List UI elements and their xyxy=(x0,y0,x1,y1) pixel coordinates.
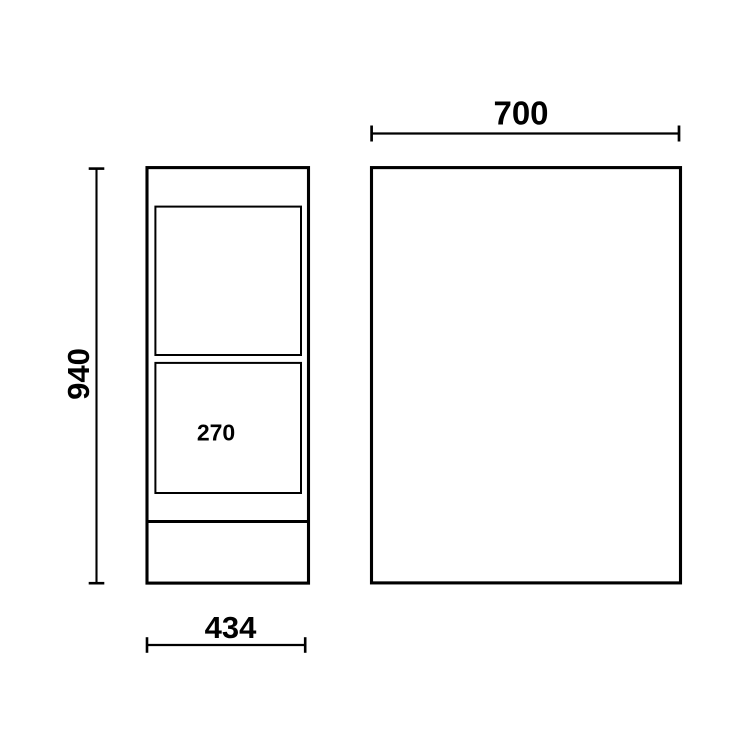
svg-text:434: 434 xyxy=(205,610,257,645)
svg-text:270: 270 xyxy=(197,419,235,445)
svg-text:700: 700 xyxy=(493,95,548,132)
svg-text:940: 940 xyxy=(61,348,96,400)
